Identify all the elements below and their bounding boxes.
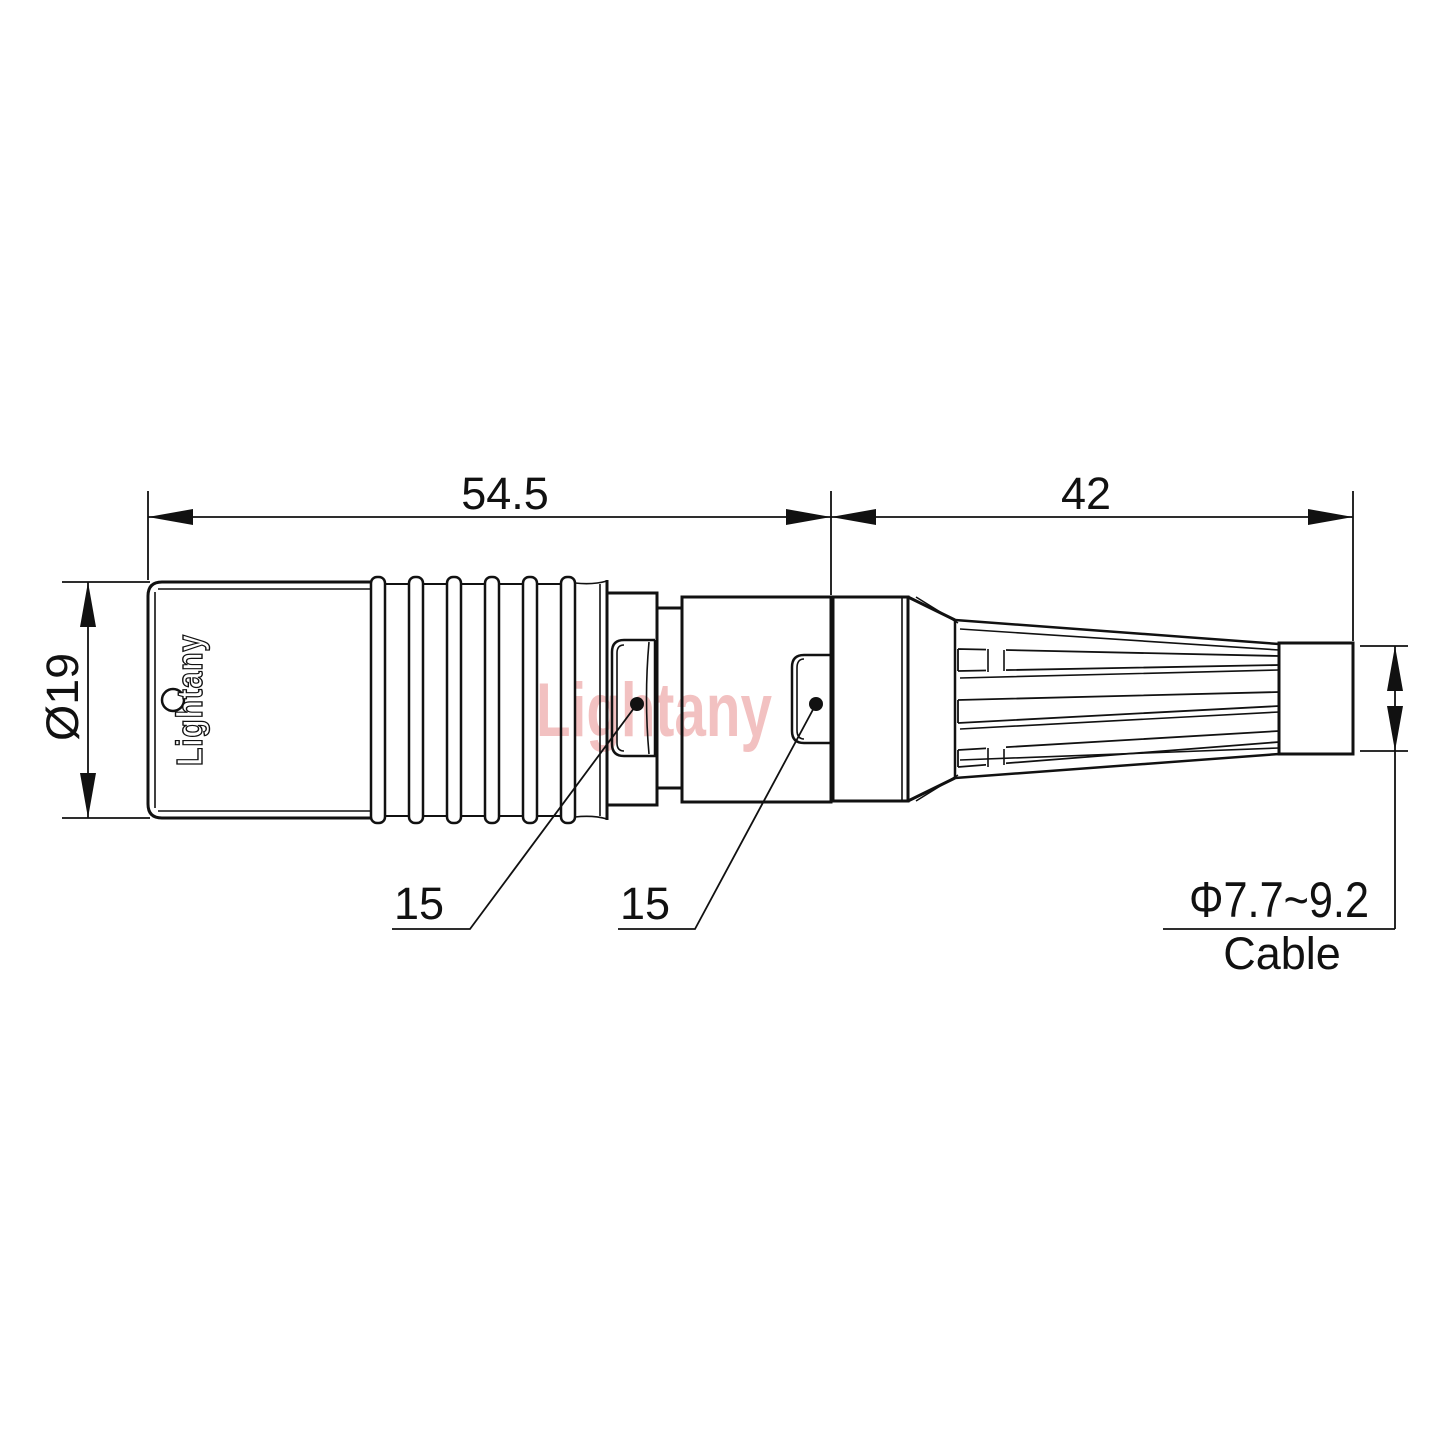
technical-drawing-page: Lightany Lightany — [0, 0, 1440, 1440]
dim-cable-caption: Cable — [1223, 928, 1341, 979]
dim-cable-diameter-label: Φ7.7~9.2 — [1189, 872, 1369, 928]
leader-rear-latch-dot — [630, 697, 644, 711]
leader-front-latch-dot — [809, 697, 823, 711]
boot-web-mask-lower — [986, 745, 1006, 769]
dim-front-length-label: 42 — [1061, 468, 1111, 519]
dim-rear-length-label: 54.5 — [461, 468, 549, 519]
leader-rear-latch-label: 15 — [394, 878, 444, 929]
dim-body-diameter-label: Ø19 — [37, 653, 88, 741]
leader-front-latch-label: 15 — [620, 878, 670, 929]
connector-technical-drawing: Lightany Lightany — [0, 0, 1440, 1440]
body-engraving-text: Lightany — [169, 634, 210, 766]
boot-web-mask-upper — [986, 648, 1006, 672]
